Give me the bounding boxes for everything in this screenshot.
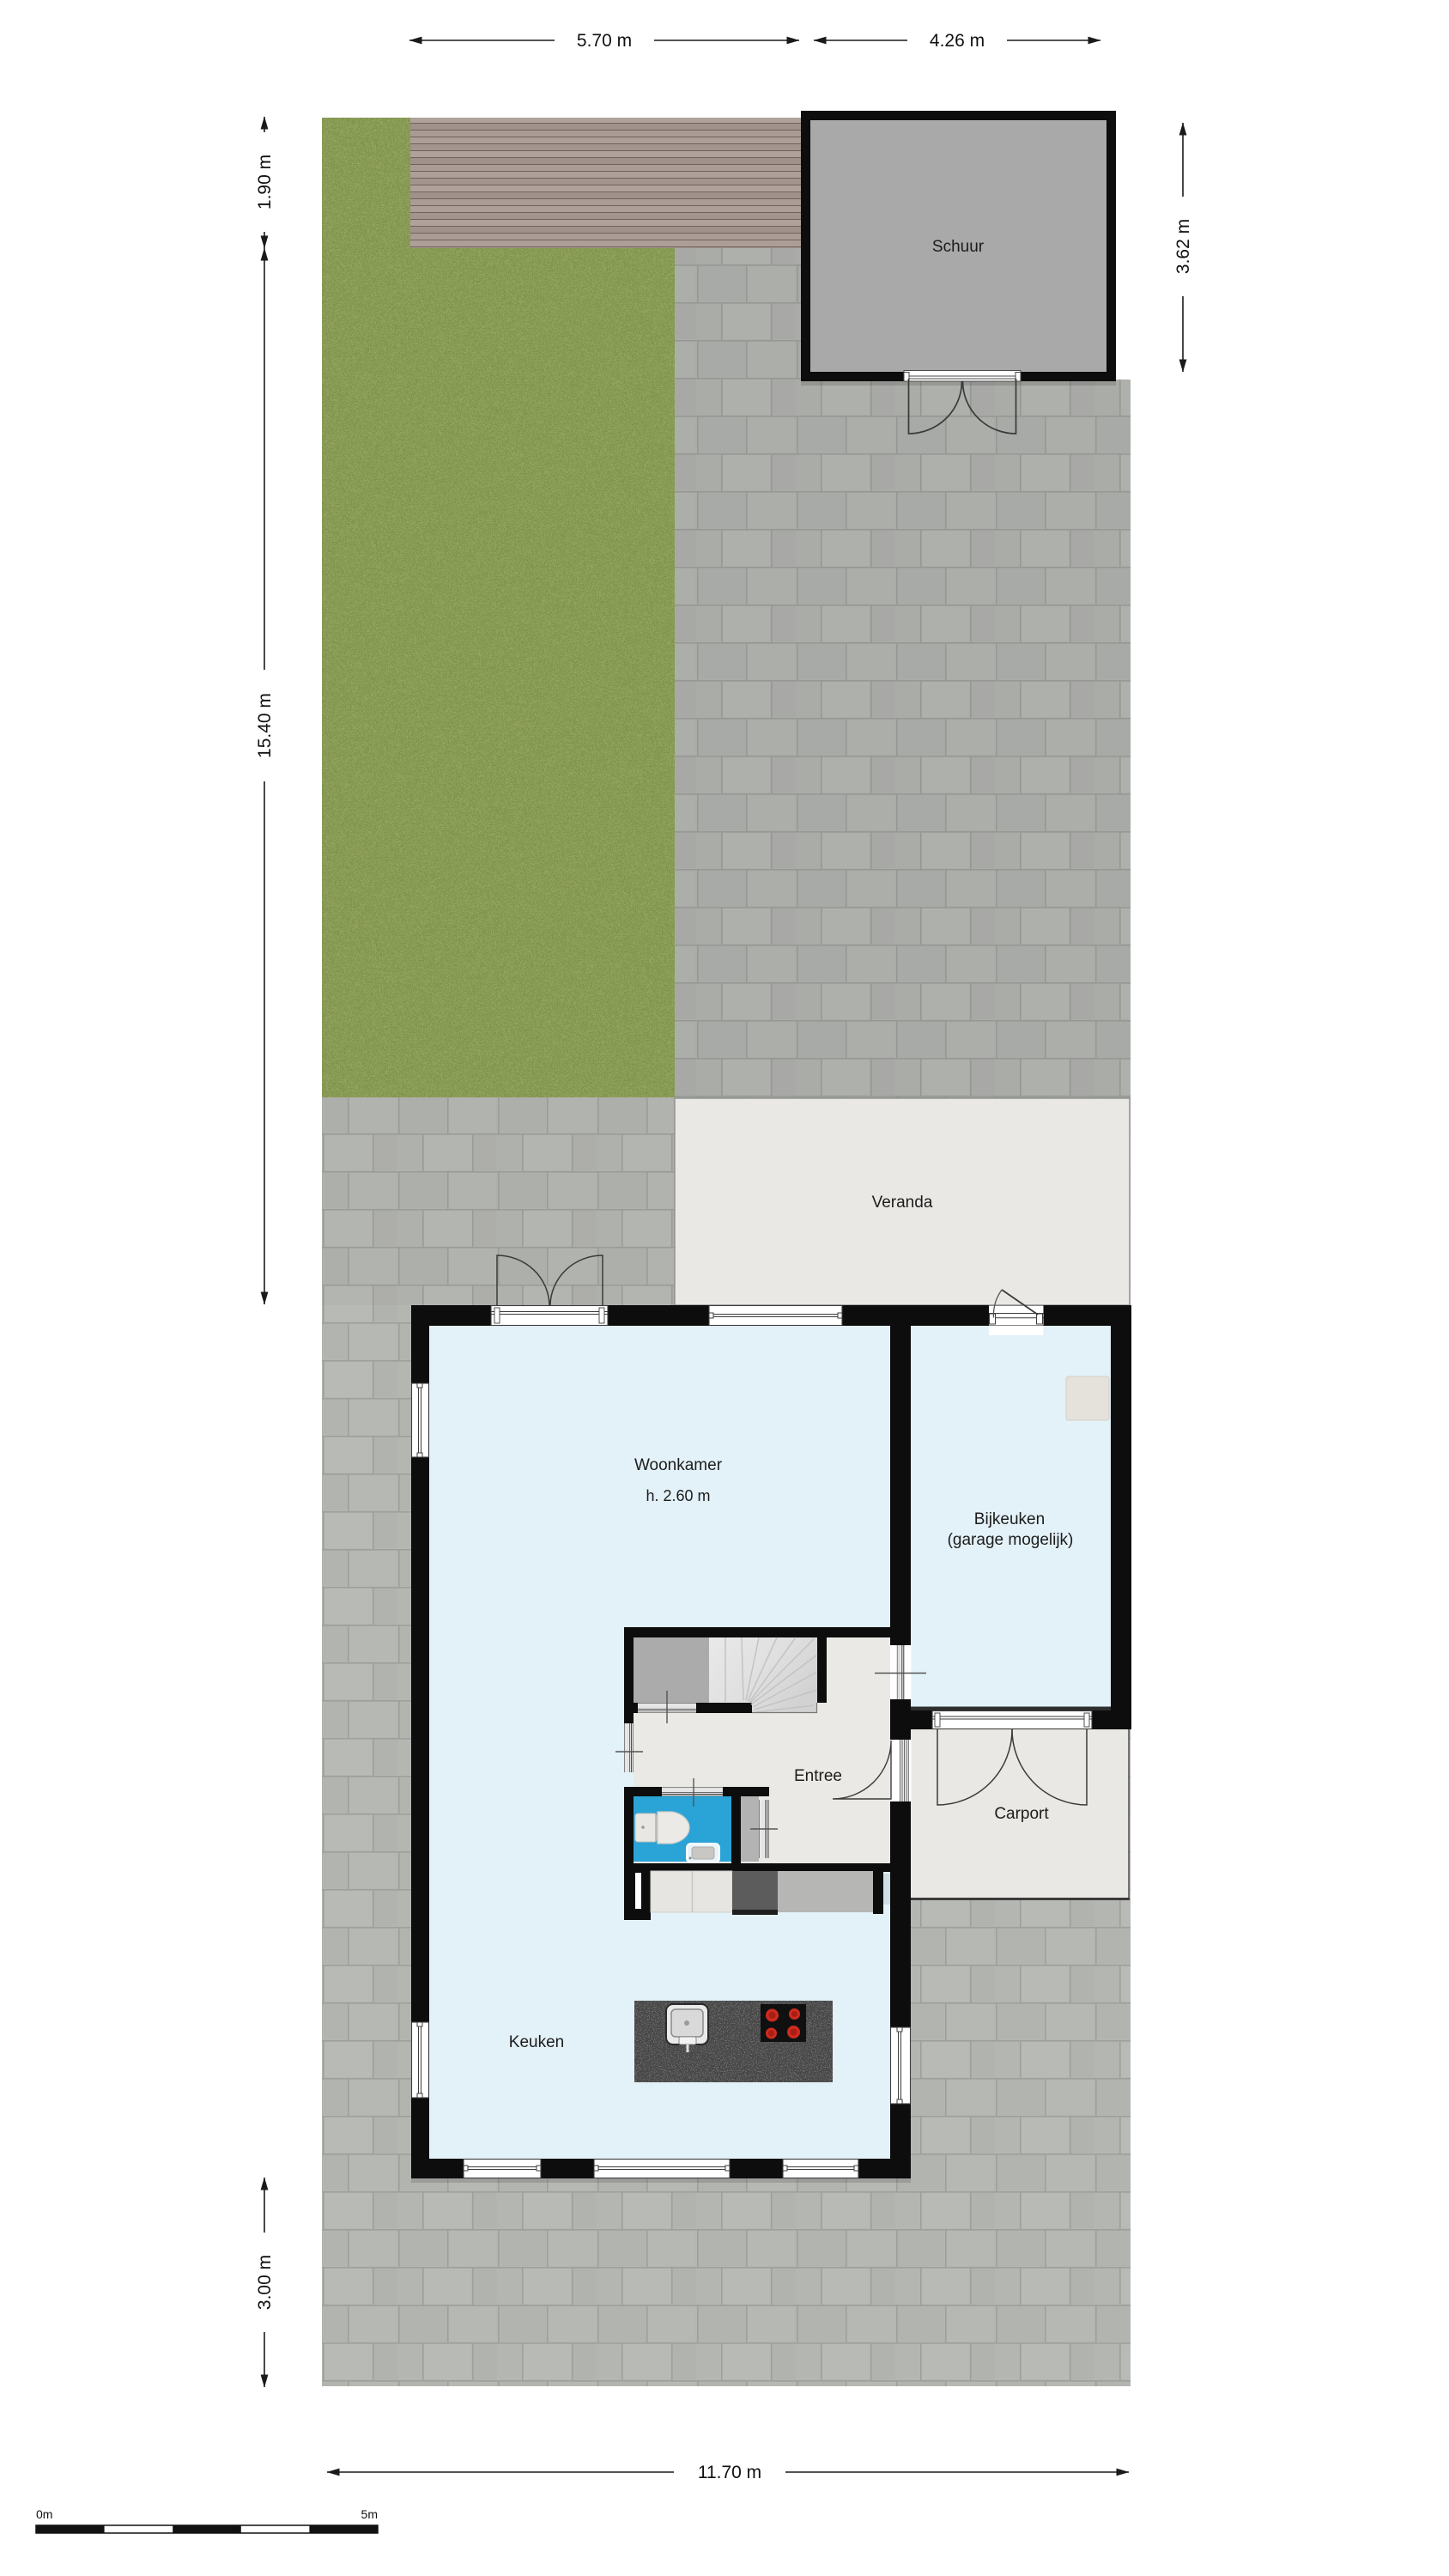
svg-text:Keuken: Keuken (509, 2033, 564, 2051)
svg-text:3.00 m: 3.00 m (255, 2255, 275, 2310)
svg-text:h. 2.60 m: h. 2.60 m (646, 1487, 710, 1504)
svg-text:1.90 m: 1.90 m (255, 155, 275, 210)
svg-text:0m: 0m (36, 2507, 52, 2521)
svg-text:5m: 5m (361, 2507, 378, 2521)
svg-text:Entree: Entree (794, 1767, 842, 1785)
svg-text:4.26 m: 4.26 m (930, 31, 985, 51)
svg-text:Bijkeuken: Bijkeuken (974, 1510, 1045, 1528)
svg-text:Woonkamer: Woonkamer (634, 1456, 723, 1474)
svg-text:Veranda: Veranda (872, 1194, 933, 1212)
svg-text:3.62 m: 3.62 m (1173, 219, 1193, 274)
svg-text:Carport: Carport (994, 1805, 1049, 1823)
svg-text:(garage mogelijk): (garage mogelijk) (948, 1531, 1074, 1549)
svg-text:15.40 m: 15.40 m (255, 693, 275, 758)
svg-text:Schuur: Schuur (932, 238, 985, 256)
svg-text:11.70 m: 11.70 m (698, 2463, 761, 2482)
svg-text:5.70 m: 5.70 m (577, 31, 632, 51)
